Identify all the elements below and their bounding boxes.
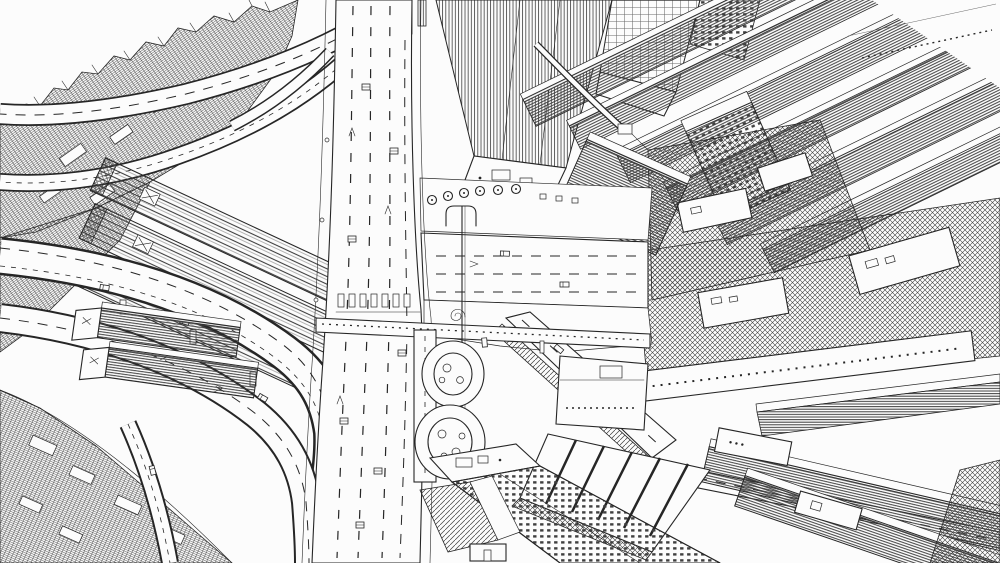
car — [362, 84, 370, 90]
car — [340, 418, 348, 424]
city-drawing-svg: Fisheye bird's-eye city — pen and ink dr… — [0, 0, 1000, 563]
car — [560, 282, 569, 287]
car — [482, 338, 488, 347]
car — [374, 468, 382, 474]
car — [348, 236, 356, 242]
crosswalk — [338, 294, 410, 307]
car — [390, 148, 398, 154]
car — [500, 251, 509, 256]
car — [398, 350, 406, 356]
car — [100, 284, 110, 290]
city-illustration: Fisheye bird's-eye city — pen and ink dr… — [0, 0, 1000, 563]
car — [356, 522, 364, 528]
